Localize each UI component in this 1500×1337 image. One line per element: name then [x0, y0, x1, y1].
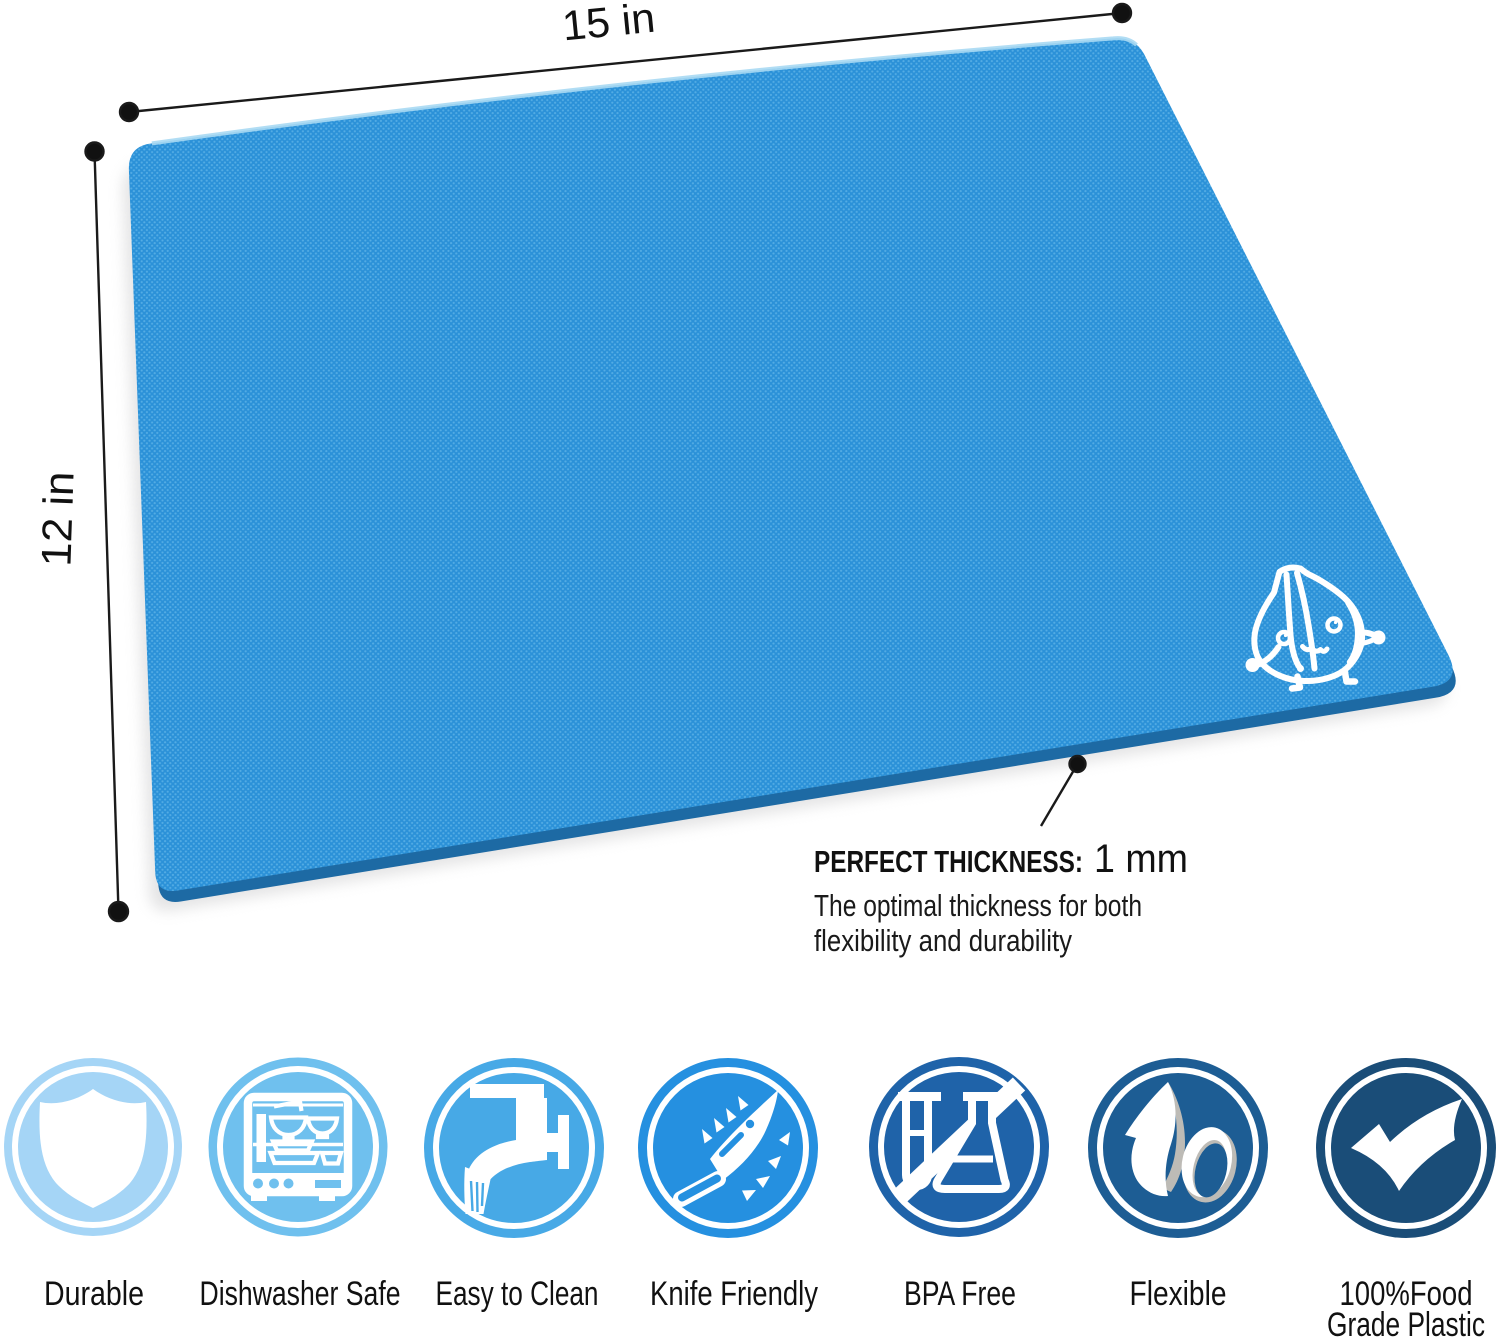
svg-text:The optimal thickness for both: The optimal thickness for both: [814, 888, 1142, 923]
svg-text:Durable: Durable: [44, 1275, 144, 1313]
svg-text:Easy to Clean: Easy to Clean: [436, 1275, 599, 1313]
svg-text:flexibility and durability: flexibility and durability: [814, 923, 1072, 958]
svg-text:15 in: 15 in: [560, 0, 657, 49]
svg-text:12 in: 12 in: [32, 471, 82, 568]
svg-text:Knife Friendly: Knife Friendly: [650, 1275, 818, 1313]
svg-text:Grade Plastic: Grade Plastic: [1327, 1306, 1485, 1337]
svg-text:Flexible: Flexible: [1130, 1275, 1227, 1313]
svg-text:1 mm: 1 mm: [1094, 837, 1188, 881]
svg-text:Dishwasher Safe: Dishwasher Safe: [200, 1275, 401, 1313]
svg-text:PERFECT THICKNESS:: PERFECT THICKNESS:: [814, 844, 1083, 879]
svg-text:BPA Free: BPA Free: [904, 1275, 1016, 1313]
